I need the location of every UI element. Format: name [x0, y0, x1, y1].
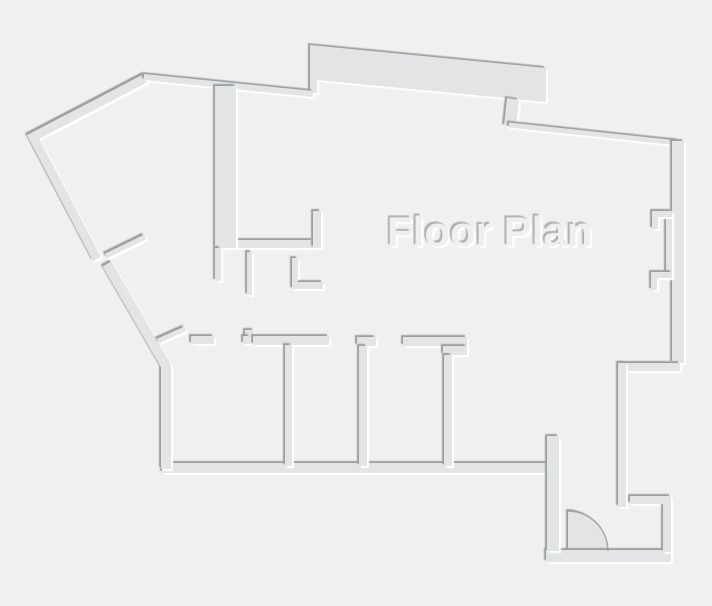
- room-divider-3: [444, 355, 452, 466]
- room-divider-1: [285, 345, 292, 466]
- entry-nook-wall: [630, 496, 671, 552]
- room1-top-wall-b: [253, 336, 329, 345]
- room1-top-jog-a: [245, 330, 254, 337]
- right-inner-wall: [618, 363, 626, 507]
- room2-top-wall: [357, 337, 376, 346]
- rooms-bottom-wall: [162, 463, 550, 473]
- hall-stub-up: [313, 211, 321, 248]
- hall-stub-a: [247, 252, 252, 295]
- door-leaf-lower: [158, 329, 185, 341]
- hall-stub-b: [292, 258, 323, 289]
- room3-top-wall: [403, 337, 467, 346]
- hall-wall-lower: [215, 248, 221, 281]
- floor-plan-canvas: [0, 0, 712, 606]
- room1-top-wall-a: [191, 336, 214, 344]
- top-band-wall: [310, 45, 546, 102]
- left-upper-wall: [33, 78, 146, 259]
- right-wall-lining: [666, 216, 672, 274]
- top-right-wall: [509, 125, 678, 143]
- hall-column-wall: [215, 86, 236, 248]
- right-step-wall: [619, 363, 680, 371]
- room-divider-2: [359, 346, 367, 466]
- door-leaf-upper: [106, 237, 145, 256]
- pilaster-lower: [651, 272, 672, 290]
- room1-top-jog-b: [243, 336, 250, 344]
- floor-plan-walls: [33, 45, 684, 562]
- left-lower-wall: [107, 264, 166, 469]
- hall-wall-horizontal: [236, 240, 313, 248]
- floor-plan-page: Floor Plan: [0, 0, 712, 606]
- bottom-entry-wall: [546, 550, 671, 562]
- right-wall: [672, 141, 684, 363]
- room3-top-block: [443, 346, 467, 355]
- entry-post-wall: [547, 436, 559, 551]
- floor-plan-title: Floor Plan: [387, 208, 592, 256]
